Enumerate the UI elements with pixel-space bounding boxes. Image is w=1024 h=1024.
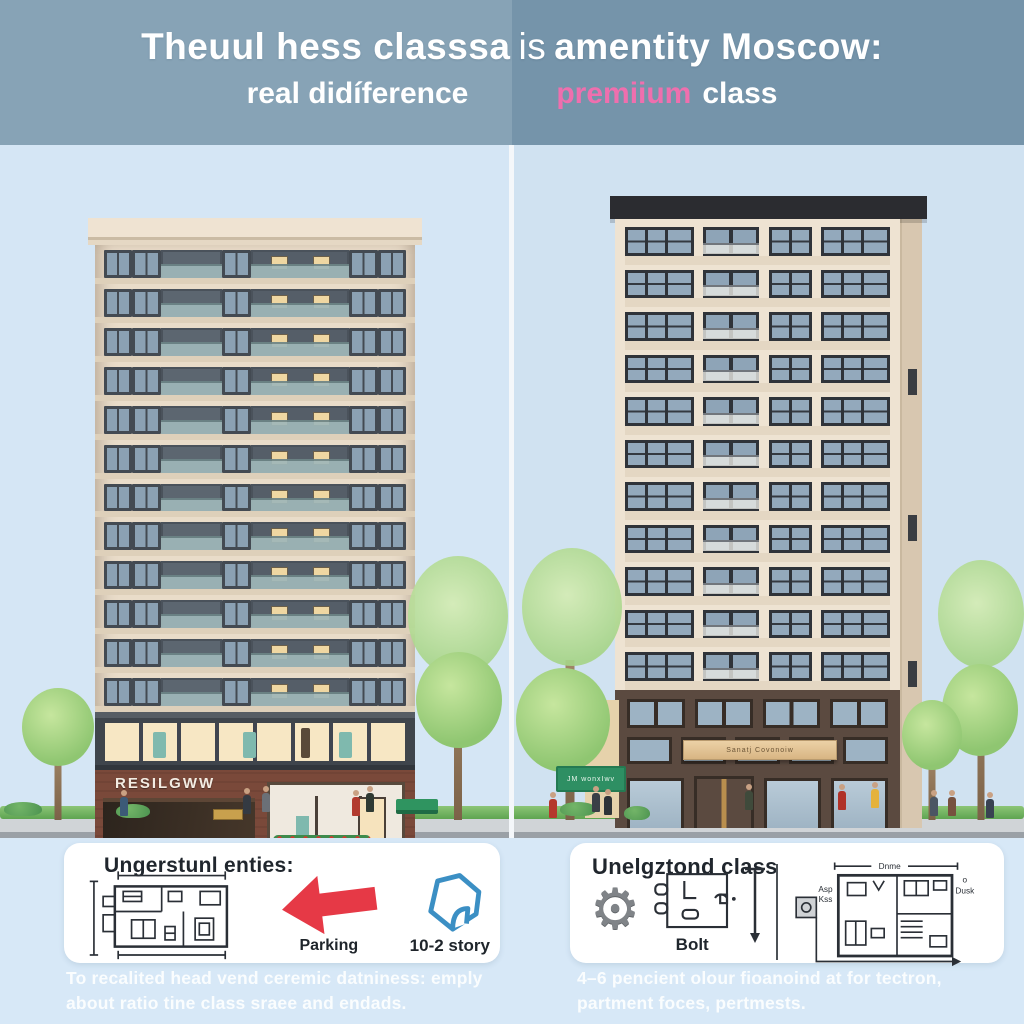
person [243,795,251,814]
person [930,797,938,816]
tree [408,556,508,820]
building-cornice [610,196,927,219]
subtitle-rest: class [702,77,777,110]
right-building-floor [625,350,890,393]
person [948,797,956,816]
person [838,791,846,810]
bush [560,802,596,816]
subtitle-accent: premiium [556,77,691,110]
person [871,789,879,808]
bush [624,806,650,820]
title-part-1: Theuul hess classsa [141,26,510,67]
plan-label-left-1: Asp [819,885,834,894]
plan-label-right-2: Dusk [956,887,976,896]
left-building-floor [95,401,415,440]
building-sign: RESILGWW [115,775,215,792]
right-building-floor [625,435,890,478]
card-divider [776,864,778,960]
plan-label-right-1: o [963,876,968,885]
right-building-floor [625,562,890,605]
page-subtitle: real didíference premiiumclass [0,77,1024,111]
subtitle-right: premiiumclass [556,77,777,111]
left-building-floor [95,479,415,518]
left-building-floor [95,440,415,479]
infographic-canvas: Theuul hess classsaisamentity Moscow: re… [0,0,1024,1024]
entrance-awning: Sanatj Covonoiw [683,740,837,760]
left-building-floor [95,517,415,556]
premium-features-card: Unelgztond class ⚙ Bolt [570,843,1004,963]
person [986,799,994,818]
page-title: Theuul hess classsaisamentity Moscow: [0,26,1024,68]
left-building-floor [95,634,415,673]
left-building-floor [95,362,415,401]
story-label: 10-2 story [410,936,490,956]
bolt-label: Bolt [676,935,709,955]
dimension-line [742,863,768,947]
center-divider [509,145,514,838]
premium-class-building: Sanatj Covonoiw [615,196,922,828]
parking-label: Parking [299,937,358,955]
house-outline-icon [417,872,483,934]
plan-label-left-2: Kss [819,895,833,904]
building-podium: Sanatj Covonoiw [615,690,900,828]
right-building-floor [625,477,890,520]
person [352,797,360,816]
floor-plan-sketch [72,868,248,960]
right-building-floor [625,392,890,435]
caption-left: To recalited head vend ceremic datniness… [66,966,498,1016]
building-cornice [88,218,422,240]
title-part-3: amentity Moscow: [554,26,883,67]
garage-sign [213,809,243,820]
caption-right: 4–6 pencient olour fioanoind at for tect… [577,966,1009,1016]
bolt-plan-sketch [644,869,740,939]
person [549,799,557,818]
left-building-floor [95,556,415,595]
comfort-features-card: Ungerstunl enties: [64,843,500,963]
tree [18,688,98,820]
amenity-glass-level [95,712,415,770]
person [120,797,128,816]
person [592,793,600,812]
person [366,793,374,812]
premium-plan-sketch: Dnme Asp Kss o Dusk [788,857,984,967]
left-building-floor [95,673,415,712]
right-building-floor [625,520,890,563]
left-building-floor [95,284,415,323]
building-floors [615,219,900,690]
left-building-floor [95,245,415,284]
right-building-floor [625,222,890,265]
street-sign: JM wonxIwv [556,766,626,792]
right-building-floor [625,647,890,690]
bench [396,799,438,814]
person [604,796,612,815]
left-building-floor [95,595,415,634]
right-building-floor [625,265,890,308]
right-building-floor [625,605,890,648]
left-building-floor [95,323,415,362]
bush [4,802,42,816]
parking-arrow-icon [275,867,382,941]
comfort-class-building: RESILGWW [95,218,415,828]
person [262,793,270,812]
person [745,791,753,810]
header-titles: Theuul hess classsaisamentity Moscow: re… [0,26,1024,111]
plan-label-top: Dnme [879,862,901,871]
building-floors [95,245,415,712]
subtitle-left: real didíference [247,77,469,111]
title-part-2: is [518,26,546,67]
right-building-floor [625,307,890,350]
gear-icon: ⚙ [590,881,640,937]
